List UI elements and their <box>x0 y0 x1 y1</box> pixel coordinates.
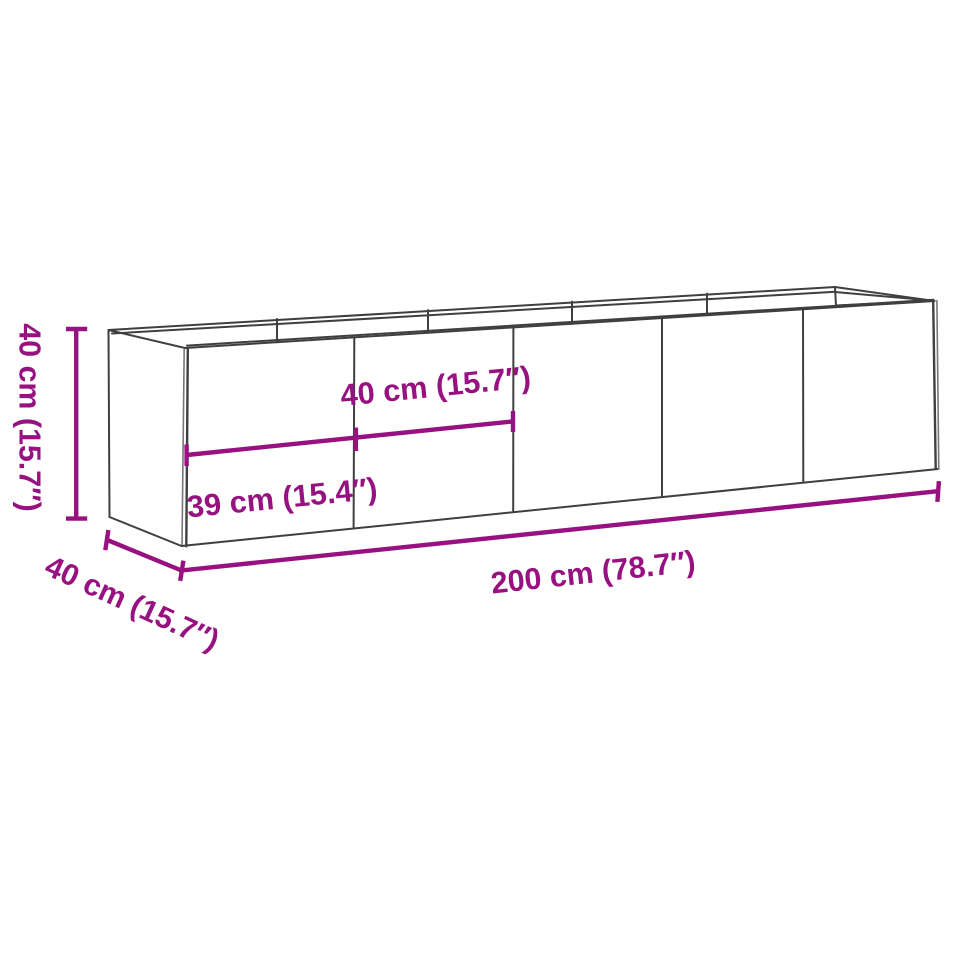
svg-text:40 cm (15.7″): 40 cm (15.7″) <box>13 323 47 512</box>
